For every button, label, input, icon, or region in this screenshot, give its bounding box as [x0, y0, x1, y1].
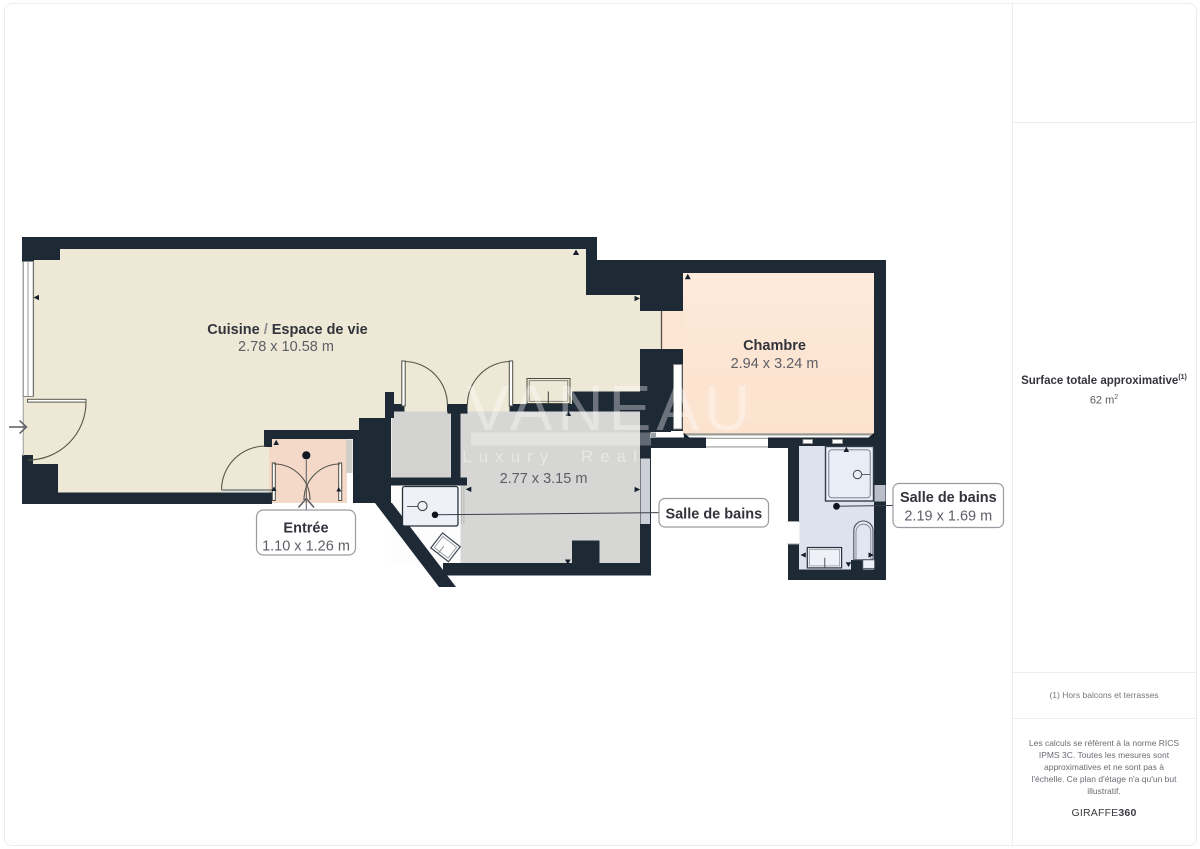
svg-text:2.77 x 3.15 m: 2.77 x 3.15 m	[500, 471, 588, 487]
svg-text:Chambre: Chambre	[743, 338, 806, 354]
svg-text:Cuisine / Espace de vie: Cuisine / Espace de vie	[207, 322, 367, 338]
svg-text:2.94 x 3.24 m: 2.94 x 3.24 m	[731, 356, 819, 372]
svg-text:1.10 x 1.26 m: 1.10 x 1.26 m	[262, 539, 350, 555]
svg-text:Entrée: Entrée	[283, 521, 328, 537]
svg-text:Salle de bains: Salle de bains	[900, 490, 997, 506]
svg-text:2.78 x 10.58 m: 2.78 x 10.58 m	[238, 339, 334, 355]
svg-text:Salle de bains: Salle de bains	[665, 507, 762, 523]
svg-text:2.19 x 1.69 m: 2.19 x 1.69 m	[904, 509, 992, 525]
